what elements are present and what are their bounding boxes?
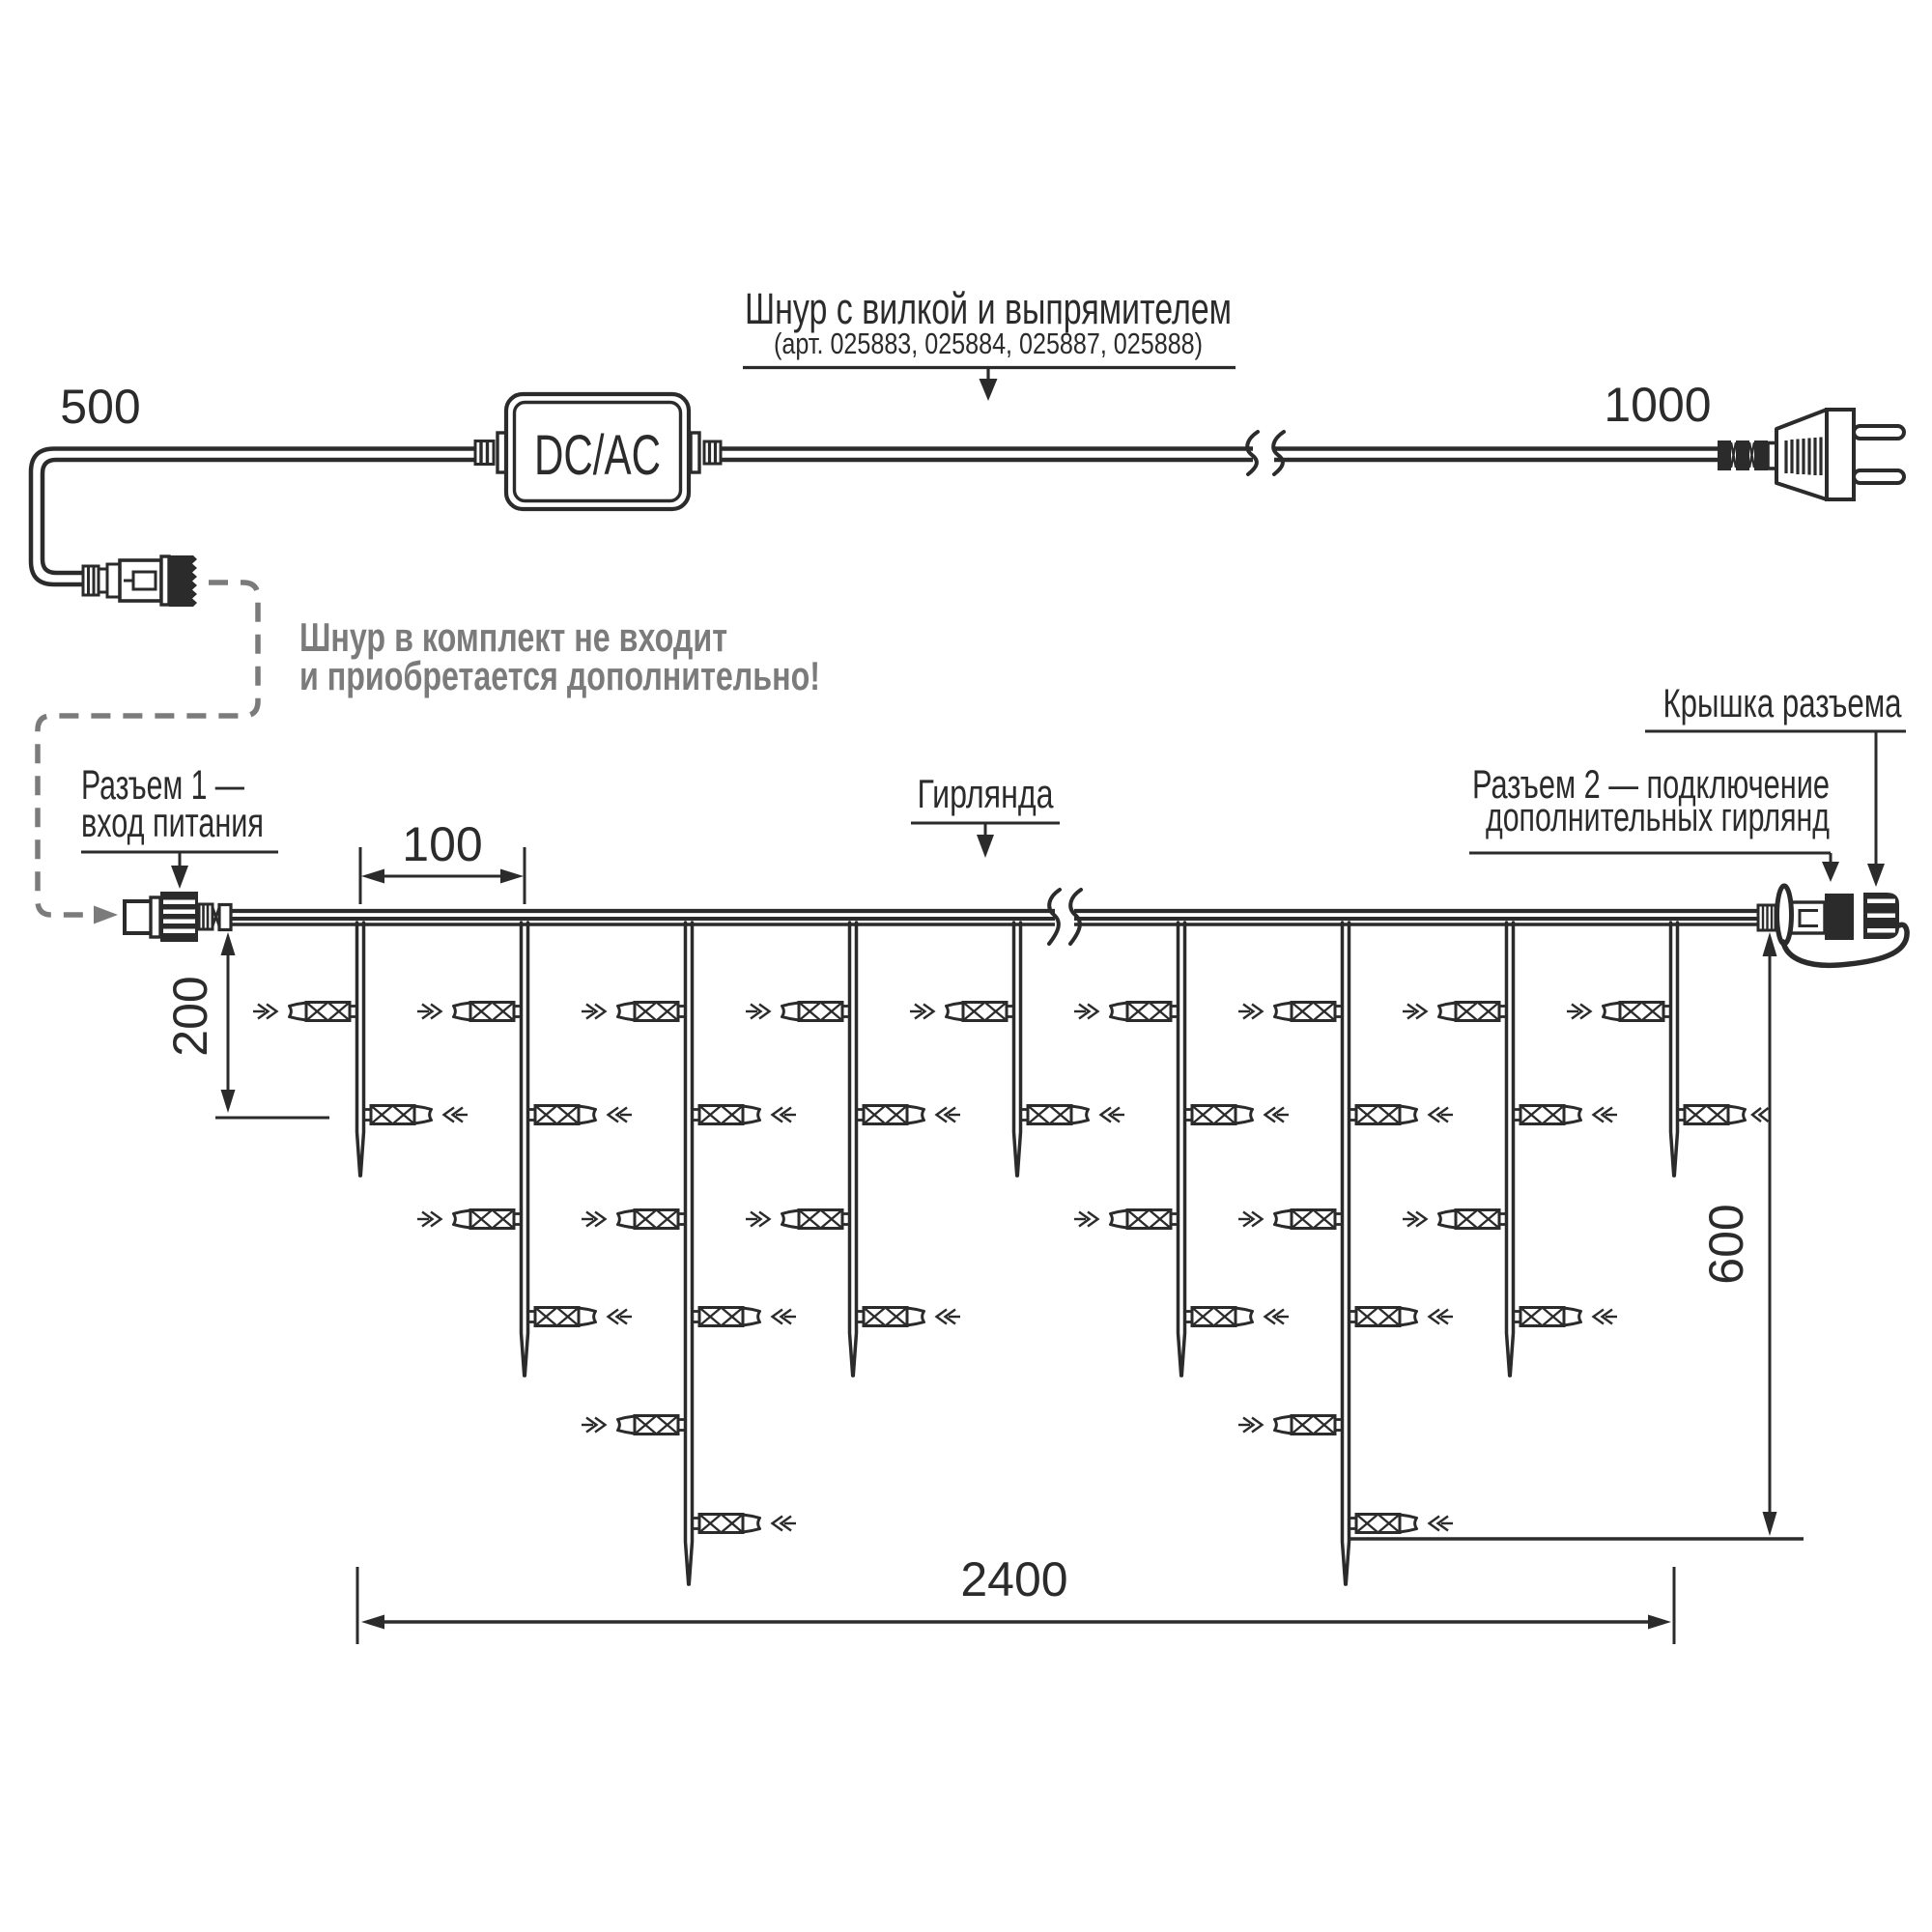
svg-text:1000: 1000 (1604, 378, 1711, 432)
svg-text:дополнительных гирлянд: дополнительных гирлянд (1486, 794, 1830, 839)
svg-text:Гирлянда: Гирлянда (918, 771, 1054, 816)
svg-text:200: 200 (163, 976, 217, 1056)
svg-text:600: 600 (1699, 1204, 1753, 1284)
svg-text:Крышка разъема: Крышка разъема (1663, 680, 1902, 725)
svg-text:DC/AC: DC/AC (534, 424, 661, 487)
svg-text:и приобретается дополнительно!: и приобретается дополнительно! (299, 653, 820, 698)
svg-text:вход питания: вход питания (81, 800, 264, 846)
svg-text:2400: 2400 (960, 1552, 1067, 1606)
svg-text:500: 500 (60, 380, 140, 434)
svg-text:100: 100 (402, 817, 482, 871)
svg-text:(арт. 025883, 025884, 025887,: (арт. 025883, 025884, 025887, 025888) (774, 327, 1203, 360)
